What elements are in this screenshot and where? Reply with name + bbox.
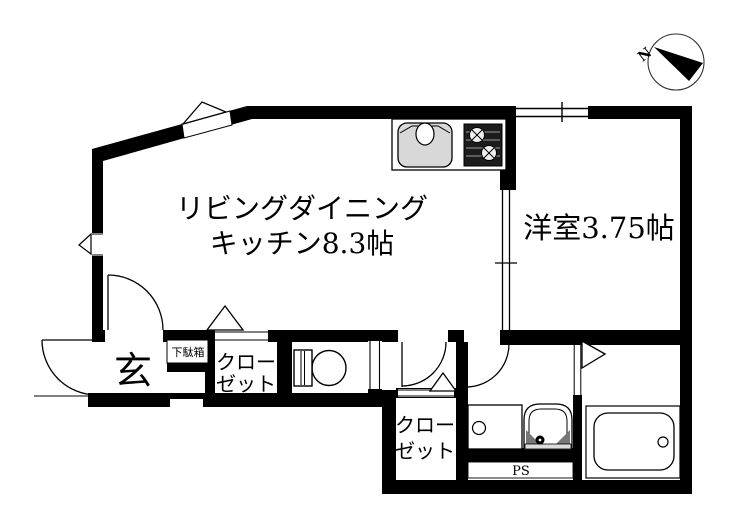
vent-left-icon [79, 233, 103, 256]
closet-lower-label-line1: クロー [395, 413, 455, 437]
closet-hall-opening [215, 331, 268, 341]
ldk-hall-door-icon [108, 275, 163, 330]
floor-plan: PS 下駄箱 N リビングダイニング キッチン8.3帖 洋室3.75帖 玄 クロ… [0, 0, 744, 506]
compass-north-icon: N [635, 34, 704, 90]
bath-folding-door-icon [582, 341, 605, 368]
wall-shoe-cabinet-band [167, 363, 208, 372]
wall-top-right [588, 106, 692, 119]
shoe-cabinet-label: 下駄箱 [172, 345, 205, 359]
closet-hall-label-line1: クロー [216, 350, 276, 374]
pipe-space: PS [468, 462, 573, 479]
kitchen-sink-icon [398, 123, 452, 167]
entrance-door-icon [34, 340, 97, 396]
wall-right [680, 106, 692, 494]
floor-plan-drawing: PS 下駄箱 N リビングダイニング キッチン8.3帖 洋室3.75帖 玄 クロ… [0, 0, 744, 506]
sliding-door-icon [495, 190, 517, 330]
wall-washroom-bath [573, 395, 582, 480]
ldk-label-line2: キッチン8.3帖 [210, 227, 395, 260]
closet-hall-label-line2: ゼット [216, 372, 276, 396]
wall-top-left [247, 106, 516, 119]
wall-closet-toilet [277, 332, 292, 395]
window-western-icon [516, 102, 588, 122]
pipe-space-label: PS [512, 464, 530, 479]
bath-door-opening [573, 345, 582, 395]
closet-lower-folding-door-icon [430, 373, 456, 391]
closet-hall-folding-door-icon [207, 306, 243, 330]
toilet-icon [294, 350, 346, 386]
gas-stove-icon [464, 124, 502, 166]
bathtub-icon [586, 406, 680, 478]
washing-machine-pan-icon [468, 405, 522, 449]
wall-closet-lower-left [382, 390, 396, 494]
entrance-label: 玄 [114, 349, 152, 393]
kitchen-counter [392, 119, 506, 170]
closet-lower-label-line2: ゼット [395, 439, 455, 463]
wall-bottom-right [382, 480, 692, 494]
wall-band-5 [504, 330, 692, 345]
ldk-label-line1: リビングダイニング [176, 192, 428, 225]
toilet-door-opening [368, 341, 382, 389]
wall-band-4 [448, 330, 464, 342]
window-diagonal-icon [182, 102, 232, 138]
washbasin-icon [524, 404, 572, 450]
wall-ldk-western-corner [500, 330, 516, 345]
wall-notch [170, 399, 203, 407]
western-room-label: 洋室3.75帖 [523, 211, 675, 245]
washroom-door-icon [466, 344, 509, 387]
shoe-cabinet: 下駄箱 [167, 340, 208, 363]
